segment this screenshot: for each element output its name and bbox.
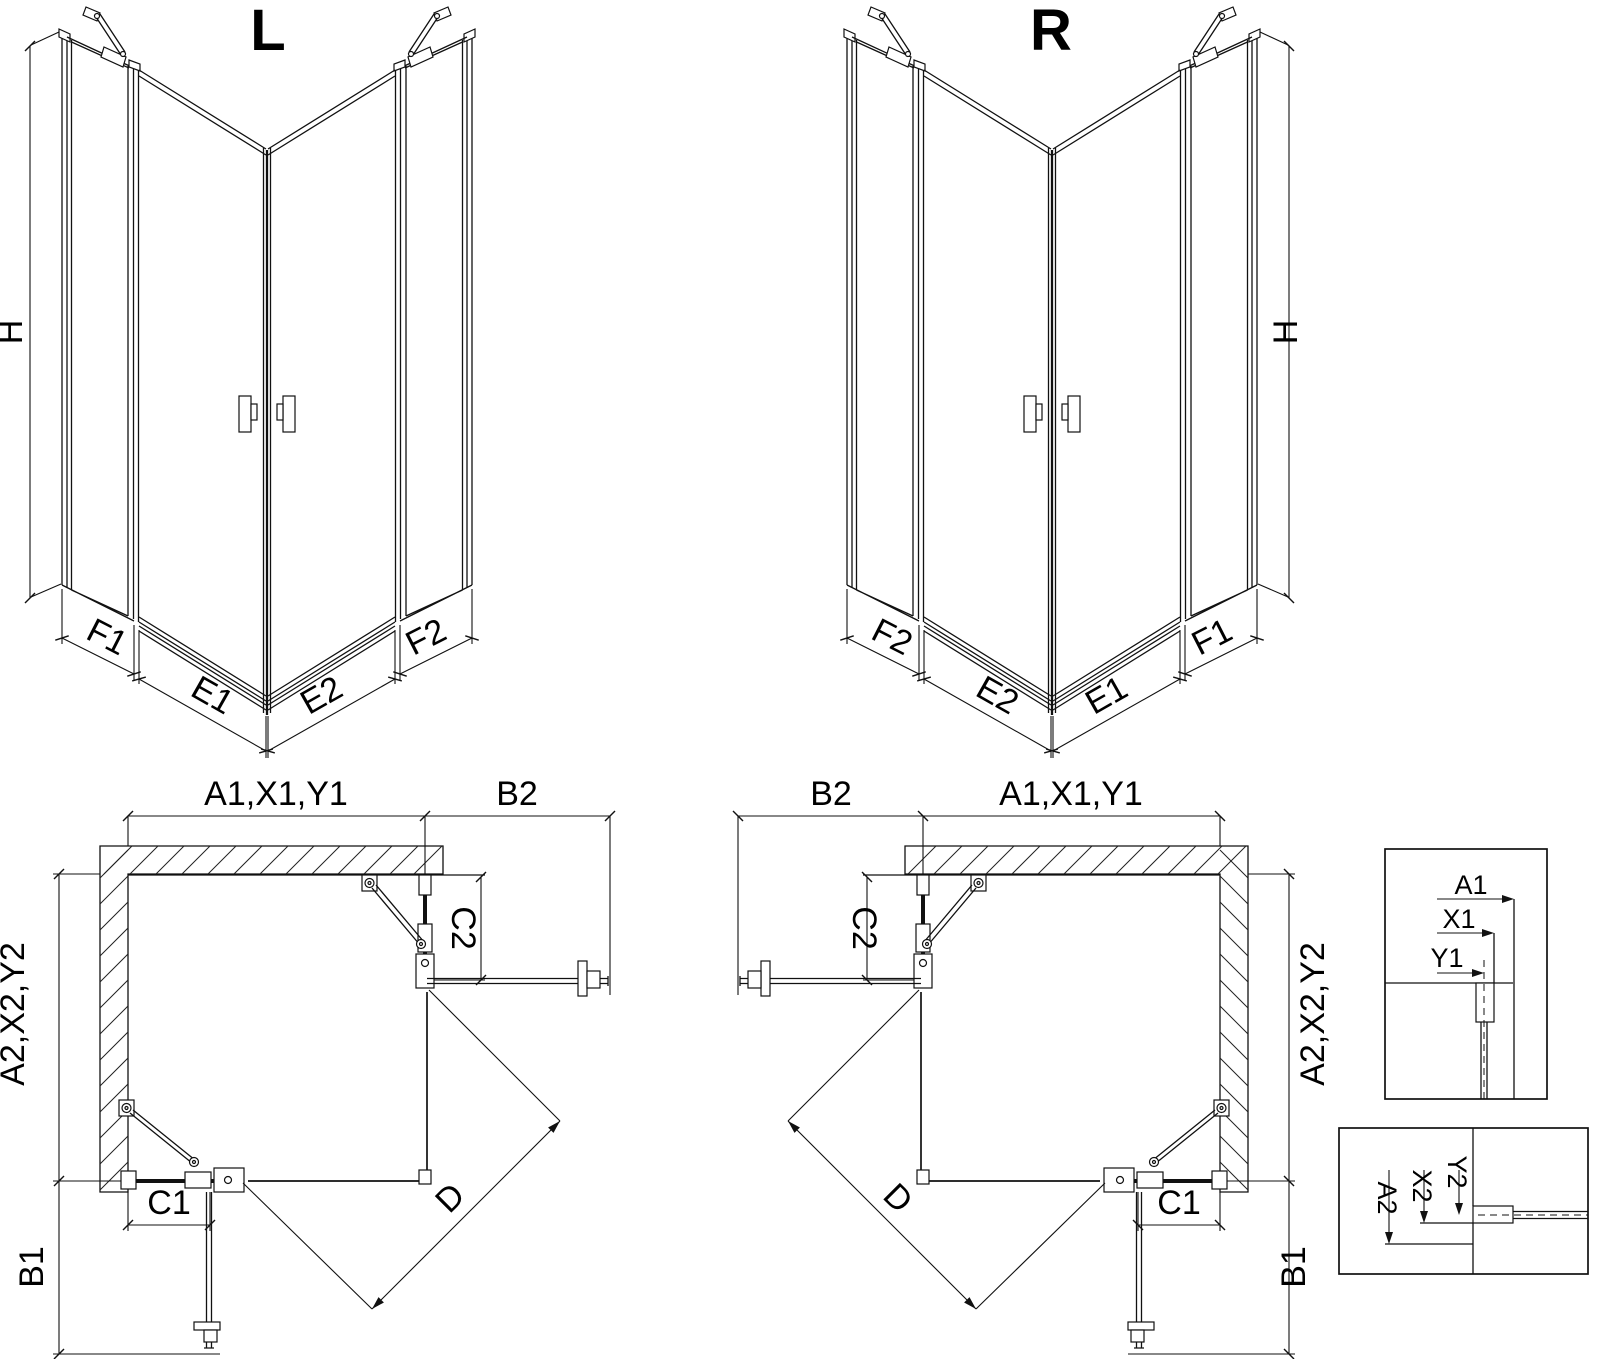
detail-dim-a1: A1 xyxy=(1454,870,1487,900)
detail-dim-a2: A2 xyxy=(1372,1181,1402,1214)
detail-wall-profile: A1 X1 Y1 xyxy=(1385,849,1547,1099)
dim-label-e1-left: E1 xyxy=(185,669,240,723)
dim-label-c2-left: C2 xyxy=(444,906,482,949)
dim-label-b2-right: B2 xyxy=(810,775,852,813)
dim-label-f2-right: F2 xyxy=(866,611,919,663)
technical-drawing-page: L H F1 E1 E2 F2 R H F2 E2 E1 F1 A1,X1,Y1… xyxy=(0,0,1600,1359)
dim-label-d-left: D xyxy=(428,1176,472,1220)
plan-left-walls xyxy=(100,846,443,1192)
dim-label-f1-right: F1 xyxy=(1186,611,1239,663)
detail-dim-y2: Y2 xyxy=(1442,1155,1472,1188)
detail-dim-x2: X2 xyxy=(1407,1169,1437,1202)
dim-label-f2-left: F2 xyxy=(400,611,453,663)
detail-floor-profile: A2 X2 Y2 xyxy=(1339,1128,1588,1274)
iso-view-right: R H F2 E2 E1 F1 xyxy=(840,0,1305,758)
plan-view-right: A1,X1,Y1 B2 C2 A2,X2,Y2 C1 B1 D xyxy=(733,775,1332,1359)
dim-label-c1-left: C1 xyxy=(147,1184,190,1222)
dim-label-h-right: H xyxy=(1267,320,1305,345)
iso-right-title: R xyxy=(1030,0,1072,63)
iso-view-left: L H F1 E1 E2 F2 xyxy=(0,0,479,758)
dim-label-a2x2y2-right: A2,X2,Y2 xyxy=(1294,942,1332,1086)
dim-label-b2-left: B2 xyxy=(496,775,538,813)
dim-label-e2-right: E2 xyxy=(970,669,1025,723)
dim-label-a2x2y2-left: A2,X2,Y2 xyxy=(0,942,32,1086)
dim-label-c1-right: C1 xyxy=(1157,1184,1200,1222)
iso-left-title: L xyxy=(250,0,285,63)
detail-dim-x1: X1 xyxy=(1442,904,1475,934)
dim-label-d-right: D xyxy=(876,1176,920,1220)
shower-enclosure-dimension-diagram: L H F1 E1 E2 F2 R H F2 E2 E1 F1 A1,X1,Y1… xyxy=(0,0,1600,1359)
plan-left-art xyxy=(53,811,615,1359)
dim-label-b1-right: B1 xyxy=(1275,1246,1313,1288)
plan-view-left: A1,X1,Y1 B2 C2 A2,X2,Y2 C1 B1 D xyxy=(0,775,615,1359)
dim-label-b1-left: B1 xyxy=(13,1246,51,1288)
plan-right-walls xyxy=(905,846,1248,1192)
plan-right-art xyxy=(733,811,1295,1359)
dim-label-a1x1y1-left: A1,X1,Y1 xyxy=(204,775,348,813)
dim-label-c2-right: C2 xyxy=(845,906,883,949)
dim-label-e2-left: E2 xyxy=(294,669,349,723)
dim-label-e1-right: E1 xyxy=(1079,669,1134,723)
dim-label-h-left: H xyxy=(0,320,30,345)
detail-dim-y1: Y1 xyxy=(1430,943,1463,973)
dim-label-a1x1y1-right: A1,X1,Y1 xyxy=(999,775,1143,813)
dim-label-f1-left: F1 xyxy=(81,611,134,663)
